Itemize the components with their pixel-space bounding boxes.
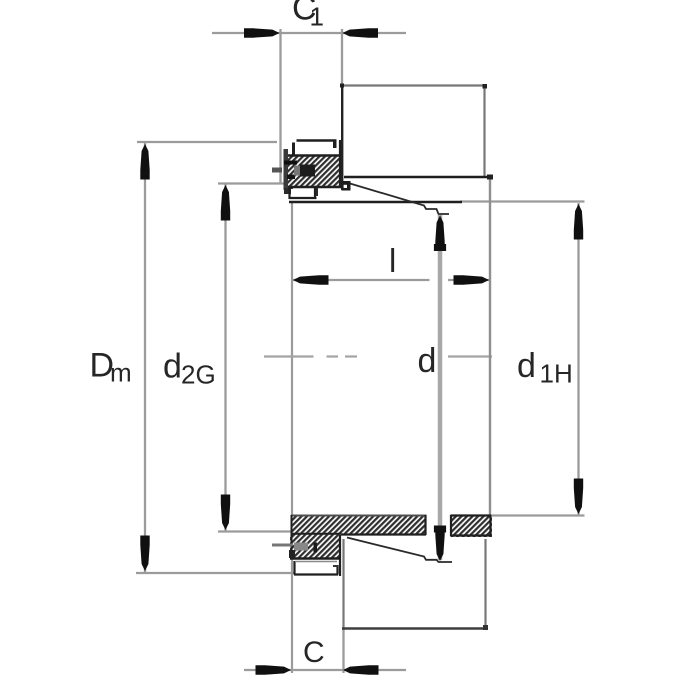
svg-text:1H: 1H	[540, 359, 573, 389]
svg-text:l: l	[389, 242, 396, 279]
svg-text:d: d	[418, 342, 437, 380]
svg-text:m: m	[110, 358, 132, 388]
svg-text:1: 1	[310, 2, 324, 32]
svg-text:C: C	[303, 636, 325, 669]
svg-text:d: d	[163, 348, 182, 386]
svg-text:2G: 2G	[181, 360, 216, 390]
svg-text:d: d	[517, 347, 536, 385]
